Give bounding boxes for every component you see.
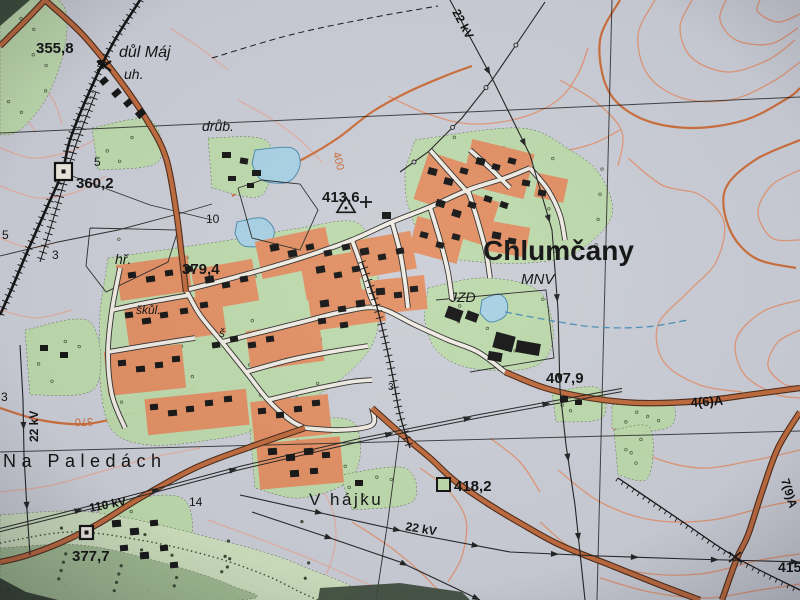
building xyxy=(168,410,177,417)
building xyxy=(394,292,402,299)
building xyxy=(128,271,137,278)
map-label: 360,2 xyxy=(76,175,114,192)
map-label: důl Máj xyxy=(119,43,171,61)
building xyxy=(575,400,582,405)
building xyxy=(340,321,349,328)
building xyxy=(268,448,277,456)
building xyxy=(286,454,295,462)
building xyxy=(170,562,178,569)
building xyxy=(112,520,122,528)
building xyxy=(248,341,257,348)
building xyxy=(410,286,418,293)
map-label: drůb. xyxy=(202,118,234,134)
building xyxy=(338,305,347,312)
map-label: JZD xyxy=(449,289,476,305)
building xyxy=(150,520,158,527)
building xyxy=(136,366,145,373)
map-label: Na Paledách xyxy=(3,451,167,471)
map-label: 407,9 xyxy=(546,370,584,387)
building xyxy=(125,311,134,318)
building xyxy=(320,299,330,307)
building xyxy=(146,275,156,282)
map-label: š xyxy=(219,326,225,340)
building xyxy=(172,356,180,363)
building xyxy=(155,362,163,369)
building xyxy=(142,317,152,324)
building xyxy=(120,545,128,552)
elevation-square-symbol xyxy=(437,478,450,491)
building xyxy=(180,307,189,314)
map-label: 22 kV xyxy=(27,411,41,442)
map-label: 5 xyxy=(94,155,101,169)
building xyxy=(228,176,236,181)
map-label: 4(6)A xyxy=(690,393,724,410)
building xyxy=(276,412,284,419)
map-label: V hájku xyxy=(309,490,383,509)
building xyxy=(290,470,299,478)
map-canvas: 355,8důl Májuh.drůb.360,2535310hř.379,4š… xyxy=(0,0,800,600)
building xyxy=(160,545,168,552)
building xyxy=(140,552,150,560)
map-label: Chlumčany xyxy=(483,235,634,266)
map-label: MNV xyxy=(521,271,556,288)
map-label: 379,4 xyxy=(182,261,220,278)
map-label: hř. xyxy=(115,251,131,267)
map-label: škůl. xyxy=(136,303,161,317)
building xyxy=(40,345,48,351)
building xyxy=(165,269,174,276)
building xyxy=(318,317,327,324)
building xyxy=(186,406,194,413)
building xyxy=(356,299,366,307)
building xyxy=(118,360,126,367)
building xyxy=(258,408,266,415)
building xyxy=(310,468,318,475)
building xyxy=(304,448,313,456)
map-label: 415, xyxy=(778,559,800,575)
map-label: 370 xyxy=(75,415,94,428)
topographic-map: 355,8důl Májuh.drůb.360,2535310hř.379,4š… xyxy=(0,0,800,600)
building xyxy=(222,152,231,158)
map-label: 3 xyxy=(1,390,8,404)
map-label: 3 xyxy=(388,382,394,393)
building xyxy=(130,528,140,536)
building xyxy=(376,288,386,296)
green-area xyxy=(614,425,653,481)
building xyxy=(294,406,302,413)
map-label: 377,7 xyxy=(72,548,110,565)
map-label: 14 xyxy=(189,495,203,509)
building xyxy=(312,400,320,407)
building xyxy=(212,341,221,348)
building xyxy=(382,212,391,219)
building xyxy=(247,183,254,188)
map-label: 5 xyxy=(2,228,9,242)
map-label: 3 xyxy=(52,248,59,262)
building xyxy=(224,396,232,403)
building xyxy=(205,400,213,407)
map-label: 418,2 xyxy=(454,478,492,495)
map-label: 413,6 xyxy=(322,189,360,206)
building xyxy=(60,352,68,358)
building xyxy=(230,335,239,342)
building xyxy=(150,404,158,411)
building xyxy=(266,335,275,342)
building xyxy=(560,396,568,402)
map-label: 10 xyxy=(206,212,220,226)
building xyxy=(252,170,261,176)
map-label: uh. xyxy=(124,66,143,82)
building xyxy=(322,452,330,459)
building xyxy=(355,480,363,486)
map-label: 355,8 xyxy=(36,40,74,57)
building xyxy=(200,301,209,308)
building xyxy=(160,311,169,318)
pond xyxy=(252,147,300,183)
